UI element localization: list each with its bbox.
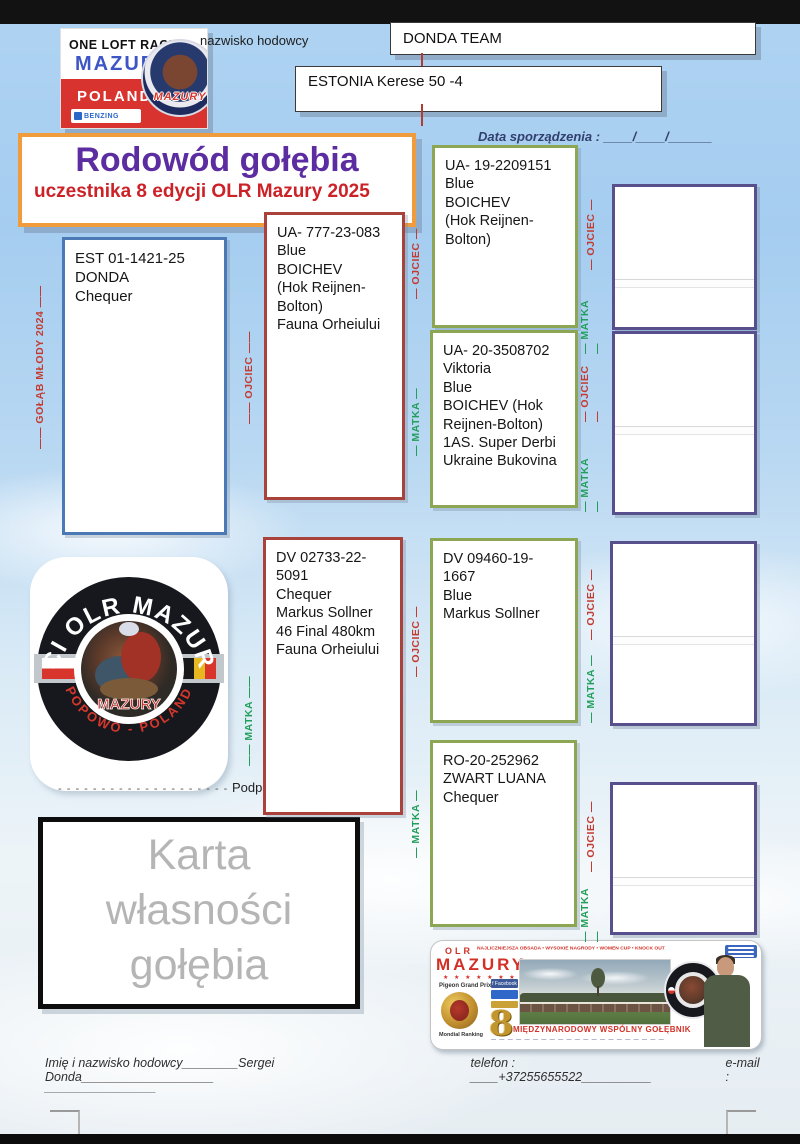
fci-olr-mazury-stamp: FCI OLR MAZURY POPOWO - POLAND MAZURY — [30, 557, 228, 791]
flag-dot-icon — [668, 987, 675, 994]
label-ojciec: — OJCIEC — — [583, 564, 599, 646]
team-name-field: DONDA TEAM — [390, 22, 756, 55]
page-subtitle: uczestnika 8 edycji OLR Mazury 2025 — [34, 181, 412, 203]
benzing-text: BENZING — [84, 113, 119, 120]
pedigree-box-mother: DV 02733-22-5091 Chequer Markus Sollner … — [263, 537, 403, 815]
box-divider — [613, 636, 754, 645]
box-divider — [615, 279, 754, 288]
date-prepared-line: Data sporządzenia : ____/____/______ — [478, 129, 712, 144]
pedigree-box-empty-4 — [610, 782, 757, 935]
pedigree-box-father: UA- 777-23-083 Blue BOICHEV (Hok Reijnen… — [264, 212, 405, 500]
pedigree-box-empty-3 — [610, 541, 757, 726]
banner-mondial-text: Mondial Ranking — [439, 1032, 483, 1038]
pedigree-box-subject: EST 01-1421-25 DONDA Chequer — [62, 237, 227, 535]
fci-stamp-icon: FCI OLR MAZURY POPOWO - POLAND MAZURY — [30, 557, 228, 791]
banner-mazury-text: MAZURY — [436, 955, 526, 975]
signature-line: - - - - - - - - - - - - - - - - - - - - … — [58, 780, 272, 795]
label-matka: — MATKA — — [583, 652, 599, 726]
pedigree-box-mm: RO-20-252962 ZWART LUANA Chequer — [430, 740, 577, 927]
fci-center-text: MAZURY — [97, 696, 161, 713]
footer-phone: telefon : ____+37255655522__________ — [471, 1056, 692, 1084]
pedigree-box-empty-2 — [612, 331, 757, 515]
benzing-icon — [74, 112, 82, 120]
ownership-card: Karta własności gołębia — [38, 817, 360, 1009]
olr-mazury-poland-logo: ONE LOFT RACE MAZURY POLAND BENZING MAZU… — [60, 28, 208, 129]
label-matka: — MATKA — — [408, 372, 424, 472]
logo-poland-text: POLAND — [77, 88, 152, 105]
banner-main-line: MIĘDZYNARODOWY WSPÓLNY GOŁĘBNIK — [513, 1025, 691, 1034]
sponsor-badge — [491, 990, 518, 999]
label-ojciec: — OJCIEC — — [583, 356, 599, 422]
loft-photo — [519, 959, 671, 1025]
mondial-ranking-globe-icon — [441, 992, 478, 1029]
connector-line — [421, 53, 423, 66]
top-black-bar — [0, 0, 800, 24]
pedigree-box-ff: UA- 19-2209151 Blue BOICHEV (Hok Reijnen… — [432, 145, 578, 328]
label-matka: — MATKA — — [583, 288, 599, 354]
box-divider — [613, 877, 754, 886]
label-ojciec: — OJCIEC — — [583, 800, 599, 874]
banner-top-line: NAJLICZNIEJSZA OBSADA • WYSOKIE NAGRODY … — [477, 946, 666, 951]
label-matka: — MATKA — — [408, 780, 424, 868]
pedigree-box-fm: UA- 20-3508702 Viktoria Blue BOICHEV (Ho… — [430, 330, 578, 508]
benzing-logo: BENZING — [71, 109, 141, 123]
bottom-black-bar — [0, 1134, 800, 1144]
label-ojciec: — OJCIEC — — [583, 198, 599, 272]
footer-email: e-mail : — [725, 1056, 765, 1084]
olr-mazury-banner: NAJLICZNIEJSZA OBSADA • WYSOKIE NAGRODY … — [430, 940, 762, 1050]
box-divider — [615, 426, 754, 435]
label-ojciec: — OJCIEC — — [408, 215, 424, 313]
label-matka: —— MATKA —— — [241, 648, 257, 793]
connector-line — [421, 104, 423, 126]
pedigree-box-mf: DV 09460-19-1667 Blue Markus Sollner — [430, 538, 578, 723]
breeder-name-label: nazwisko hodowcy — [200, 33, 308, 48]
label-ojciec: —— OJCIEC —— — [241, 308, 257, 448]
banner-grand-prix-text: Pigeon Grand Prix — [439, 983, 491, 989]
label-ojciec: — OJCIEC — — [408, 592, 424, 692]
loft-name-field: ESTONIA Kerese 50 -4 — [295, 66, 662, 112]
crop-mark — [50, 1110, 80, 1134]
label-matka: — MATKA — — [583, 446, 599, 512]
banner-micro-line: — — — — — — — — — — — — — — — — — — — — … — [491, 1037, 721, 1043]
pedigree-document: ONE LOFT RACE MAZURY POLAND BENZING MAZU… — [0, 0, 800, 1144]
team-name-value: DONDA TEAM — [403, 30, 502, 47]
pedigree-box-empty-1 — [612, 184, 757, 330]
loft-name-value: ESTONIA Kerese 50 -4 — [308, 73, 463, 90]
signature-dots: - - - - - - - - - - - - - - - - - - - - — [58, 783, 228, 795]
label-matka: — MATKA — — [583, 878, 599, 942]
photo-grass — [520, 1012, 670, 1024]
crop-mark — [726, 1110, 756, 1134]
badge-mazury-text: MAZURY — [147, 91, 208, 103]
footer-blank-line: ________________ — [45, 1080, 156, 1094]
page-title: Rodowód gołębia — [22, 141, 412, 180]
photo-tree — [590, 968, 606, 994]
label-young-bird-2024: —— GOŁĄB MŁODY 2024 —— — [32, 282, 48, 452]
breeder-photo — [703, 955, 751, 1047]
facebook-badge: f Facebook — [491, 979, 518, 988]
